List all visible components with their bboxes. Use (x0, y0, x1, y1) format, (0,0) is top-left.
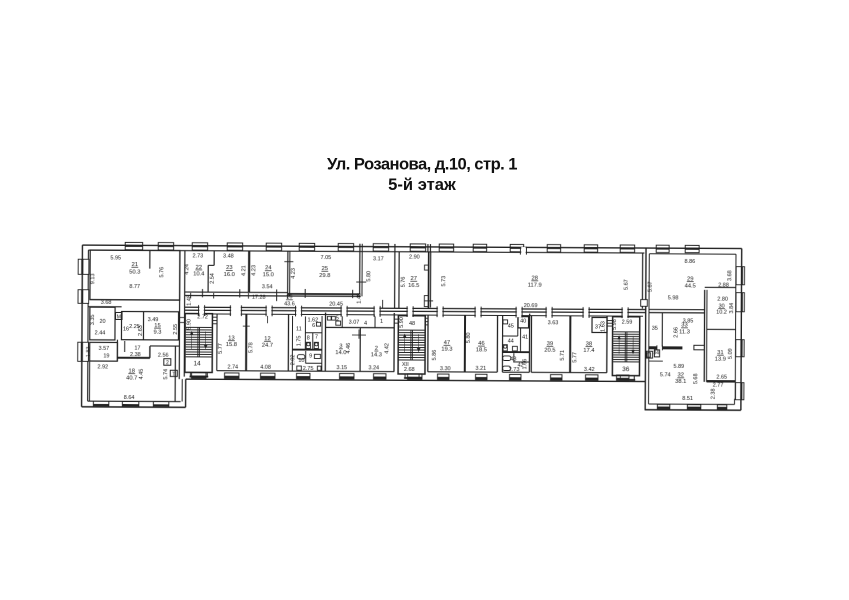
svg-text:18.5: 18.5 (476, 347, 487, 353)
svg-text:2.38: 2.38 (130, 352, 141, 358)
svg-text:43: 43 (510, 356, 516, 362)
svg-text:5.74: 5.74 (660, 372, 671, 378)
svg-text:50.3: 50.3 (129, 270, 140, 276)
svg-text:8.51: 8.51 (682, 396, 693, 402)
svg-text:19.3: 19.3 (441, 347, 452, 353)
svg-text:38.1: 38.1 (675, 379, 686, 385)
svg-text:29.8: 29.8 (319, 273, 330, 279)
svg-text:2.88: 2.88 (718, 282, 729, 288)
svg-text:2.38: 2.38 (711, 389, 717, 400)
svg-text:4.46: 4.46 (346, 343, 352, 354)
svg-text:8.64: 8.64 (124, 395, 135, 401)
svg-text:3.48: 3.48 (223, 253, 234, 259)
svg-text:8.86: 8.86 (684, 259, 695, 265)
svg-text:1: 1 (380, 319, 383, 325)
svg-text:2.56: 2.56 (158, 352, 169, 358)
svg-text:2.55: 2.55 (173, 324, 179, 335)
svg-text:5.68: 5.68 (693, 373, 699, 384)
svg-text:4.23: 4.23 (251, 265, 257, 276)
svg-text:5.89: 5.89 (673, 364, 684, 370)
svg-text:8.77: 8.77 (129, 284, 140, 290)
svg-text:3.07: 3.07 (349, 320, 360, 326)
svg-text:5.76: 5.76 (159, 267, 165, 278)
svg-text:2.80: 2.80 (717, 297, 728, 303)
svg-text:3.68: 3.68 (727, 270, 733, 281)
svg-text:15.8: 15.8 (226, 342, 237, 348)
svg-text:5.80: 5.80 (366, 271, 372, 282)
svg-text:3.30: 3.30 (440, 366, 451, 372)
svg-text:5-й этаж: 5-й этаж (388, 175, 456, 194)
svg-text:3.15: 3.15 (336, 365, 347, 371)
svg-text:16: 16 (123, 326, 129, 332)
svg-text:2.65: 2.65 (716, 375, 727, 381)
svg-text:5.90: 5.90 (399, 317, 405, 328)
svg-text:4: 4 (364, 321, 367, 327)
svg-text:5.67: 5.67 (624, 279, 630, 290)
svg-text:7.05: 7.05 (320, 255, 331, 261)
svg-text:10: 10 (298, 358, 304, 364)
svg-text:2.77: 2.77 (713, 383, 724, 389)
svg-text:5.76: 5.76 (401, 277, 407, 288)
svg-text:2.74: 2.74 (227, 364, 238, 370)
svg-text:5.73: 5.73 (441, 276, 447, 287)
svg-text:15.0: 15.0 (263, 272, 274, 278)
svg-text:6: 6 (312, 323, 315, 329)
svg-text:10.2: 10.2 (716, 310, 727, 316)
svg-text:16.5: 16.5 (408, 283, 419, 289)
svg-text:4.23: 4.23 (291, 268, 297, 279)
svg-text:14.3: 14.3 (371, 352, 382, 358)
svg-text:41: 41 (522, 335, 528, 341)
svg-text:5.90: 5.90 (187, 319, 193, 330)
svg-text:2.54: 2.54 (210, 273, 216, 284)
svg-text:5.95: 5.95 (110, 255, 121, 261)
svg-text:3.42: 3.42 (584, 367, 595, 373)
svg-text:5.71: 5.71 (560, 350, 566, 361)
svg-text:17: 17 (134, 346, 140, 352)
svg-text:9.13: 9.13 (90, 273, 96, 284)
svg-text:20: 20 (99, 319, 105, 325)
svg-text:4.21: 4.21 (241, 265, 247, 276)
svg-text:5.78: 5.78 (248, 342, 254, 353)
svg-text:5.67: 5.67 (647, 281, 653, 292)
svg-text:2: 2 (166, 360, 169, 366)
svg-text:4.24: 4.24 (184, 264, 190, 275)
svg-text:5.74: 5.74 (163, 369, 169, 380)
svg-text:2.68: 2.68 (404, 367, 415, 373)
svg-text:44.5: 44.5 (685, 283, 696, 289)
svg-text:14: 14 (194, 360, 202, 367)
svg-text:17.28: 17.28 (252, 294, 266, 300)
svg-text:11.3: 11.3 (679, 329, 690, 335)
svg-text:3.54: 3.54 (262, 284, 273, 290)
svg-text:36: 36 (622, 366, 630, 373)
svg-text:24.7: 24.7 (262, 343, 273, 349)
svg-text:Т: Т (172, 372, 175, 378)
svg-text:3.21: 3.21 (475, 366, 486, 372)
svg-text:9.3: 9.3 (153, 329, 161, 335)
svg-text:2.92: 2.92 (97, 364, 108, 370)
svg-text:40: 40 (520, 319, 526, 325)
svg-text:1.63: 1.63 (600, 321, 606, 332)
svg-text:1.48: 1.48 (187, 295, 193, 306)
svg-text:10.4: 10.4 (193, 271, 205, 277)
svg-text:3.17: 3.17 (373, 256, 384, 262)
svg-text:2.73: 2.73 (509, 367, 520, 373)
svg-text:1.66: 1.66 (522, 359, 528, 370)
svg-text:117.9: 117.9 (528, 283, 542, 289)
svg-text:2.02: 2.02 (290, 355, 296, 366)
svg-text:3.84: 3.84 (729, 303, 735, 314)
svg-text:44: 44 (508, 339, 514, 345)
svg-text:5.77: 5.77 (572, 352, 578, 363)
svg-text:2.72: 2.72 (197, 314, 208, 320)
svg-text:17.4: 17.4 (583, 348, 595, 354)
svg-text:3.68: 3.68 (101, 300, 112, 306)
svg-text:2.73: 2.73 (192, 253, 203, 259)
svg-text:1.48: 1.48 (357, 293, 363, 304)
svg-text:14.0: 14.0 (335, 350, 346, 356)
svg-text:1.75: 1.75 (296, 336, 302, 347)
svg-text:2.44: 2.44 (95, 330, 106, 336)
svg-text:5.80: 5.80 (466, 332, 472, 343)
svg-text:11: 11 (296, 326, 302, 332)
svg-text:2.75: 2.75 (303, 366, 314, 372)
svg-text:5.09: 5.09 (728, 348, 734, 359)
svg-text:3.57: 3.57 (99, 346, 110, 352)
svg-text:3.63: 3.63 (548, 320, 559, 326)
svg-text:9: 9 (309, 353, 312, 359)
svg-text:М: М (117, 314, 121, 320)
svg-text:4.45: 4.45 (139, 369, 145, 380)
svg-text:20.5: 20.5 (544, 348, 555, 354)
svg-text:35: 35 (652, 326, 658, 332)
svg-text:2.63: 2.63 (138, 325, 144, 336)
svg-text:4.08: 4.08 (260, 365, 271, 371)
svg-text:7: 7 (315, 335, 318, 341)
svg-text:5.98: 5.98 (612, 319, 618, 330)
svg-text:2.59: 2.59 (622, 320, 633, 326)
svg-text:48: 48 (409, 321, 415, 327)
svg-text:2.90: 2.90 (409, 255, 420, 261)
svg-text:8: 8 (307, 336, 310, 342)
svg-text:20.45: 20.45 (329, 302, 343, 308)
svg-text:43.6: 43.6 (284, 301, 295, 307)
svg-text:19: 19 (103, 353, 109, 359)
svg-text:1.83: 1.83 (86, 346, 92, 357)
svg-text:4.42: 4.42 (384, 343, 390, 354)
svg-text:13.9: 13.9 (715, 356, 726, 362)
svg-text:20.69: 20.69 (524, 303, 538, 309)
svg-text:3.24: 3.24 (368, 365, 379, 371)
svg-text:5.77: 5.77 (218, 343, 224, 354)
svg-text:Ул. Розанова, д.10, стр. 1: Ул. Розанова, д.10, стр. 1 (327, 155, 517, 174)
svg-text:40.7: 40.7 (126, 376, 137, 382)
svg-text:2.66: 2.66 (673, 327, 679, 338)
svg-text:45: 45 (508, 323, 514, 329)
svg-text:5.86: 5.86 (432, 350, 438, 361)
svg-text:3.35: 3.35 (90, 314, 96, 325)
svg-text:5.98: 5.98 (668, 295, 679, 301)
svg-text:16.0: 16.0 (224, 272, 235, 278)
